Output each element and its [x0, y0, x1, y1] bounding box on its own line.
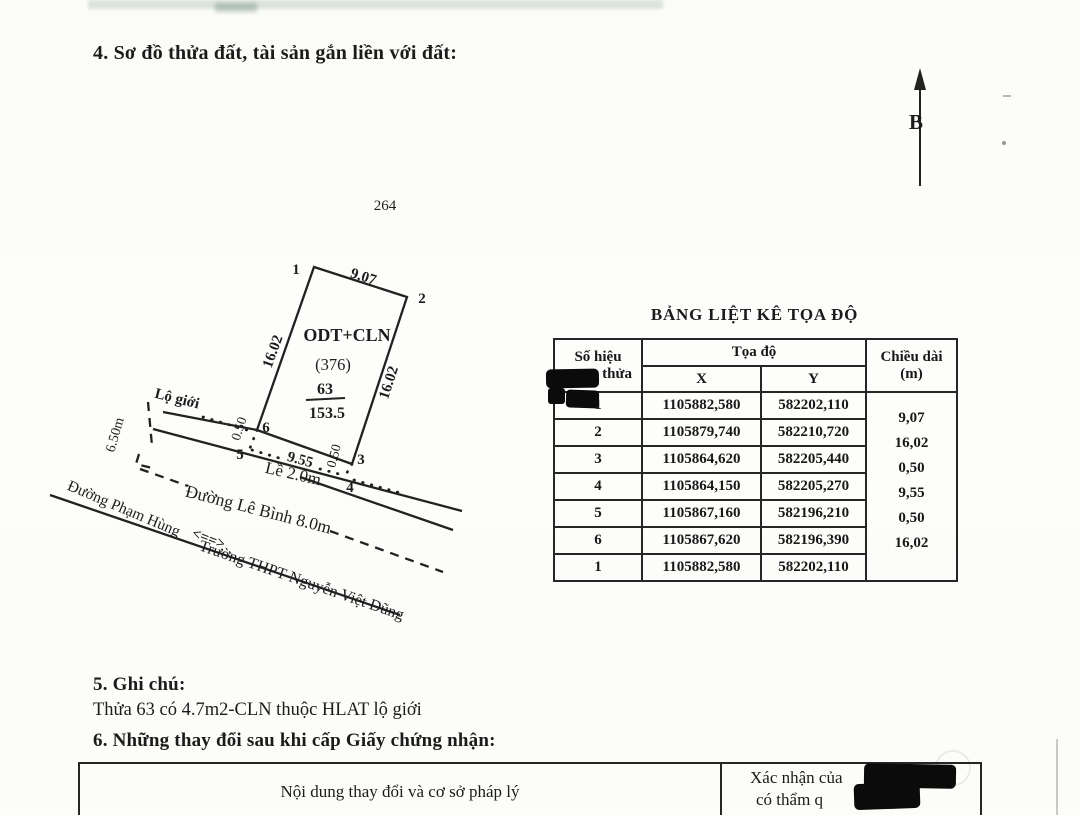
cell-y: 582196,390 [761, 527, 866, 554]
table-row: 1 1105882,580 582202,110 9,07 16,02 0,50… [554, 392, 957, 419]
land-use-label: ODT+CLN [303, 325, 390, 345]
edge-jog-left-label: 0.50 [228, 415, 250, 442]
setback-dashed-corner [136, 454, 152, 468]
map-sheet-number: 264 [374, 198, 397, 214]
coord-header-row-1: Số hiệu thửa Tọa độ Chiều dài (m) [554, 339, 957, 366]
direction-from-label: Đường Phạm Hùng [65, 477, 183, 540]
redaction-mark [854, 782, 921, 810]
plot-number-label: 63 [317, 381, 333, 398]
corner-label-1: 1 [292, 262, 300, 278]
coord-header-y: Y [761, 366, 866, 392]
redaction-mark [546, 369, 599, 389]
edge-right-label: 16.02 [376, 364, 402, 401]
setback-label: 6.50m [104, 416, 128, 454]
length-values-cell: 9,07 16,02 0,50 9,55 0,50 16,02 [866, 392, 957, 581]
redaction-mark [566, 389, 600, 408]
cell-no: 5 [554, 500, 642, 527]
edge-jog-right-label: 0.50 [323, 442, 344, 469]
length-value: 9,55 [867, 481, 956, 506]
changes-right-line2: có thẩm q [756, 790, 823, 810]
document-page: 4. Sơ đồ thửa đất, tài sản gắn liền với … [0, 0, 1080, 815]
coord-table-title: BẢNG LIỆT KÊ TỌA ĐỘ [553, 305, 956, 325]
fraction-line [306, 398, 345, 400]
lo-gioi-dotted-right [354, 480, 404, 494]
length-value: 0,50 [867, 506, 956, 531]
cell-x: 1105867,620 [642, 527, 761, 554]
coordinates-table: Số hiệu thửa Tọa độ Chiều dài (m) X Y 1 … [553, 338, 958, 582]
cell-no: 4 [554, 473, 642, 500]
changes-right-line1: Xác nhận của [750, 768, 843, 788]
coord-header-length: Chiều dài (m) [866, 339, 957, 392]
changes-table: Nội dung thay đổi và cơ sở pháp lý Xác n… [78, 762, 982, 815]
length-value: 9,07 [867, 406, 956, 431]
length-value: 16,02 [867, 531, 956, 556]
plot-code-label: (376) [315, 355, 351, 374]
corner-label-5: 5 [236, 447, 244, 463]
jog-6-5-dotted [250, 430, 257, 448]
road-far-boundary-dashed-a [140, 469, 188, 486]
jog-3-4-dotted [345, 464, 352, 476]
cell-x: 1105864,620 [642, 446, 761, 473]
corner-label-6: 6 [262, 420, 270, 436]
length-value: 0,50 [867, 456, 956, 481]
cell-x: 1105879,740 [642, 419, 761, 446]
cell-no: 6 [554, 527, 642, 554]
cell-no: 1 [554, 554, 642, 581]
cell-y: 582205,440 [761, 446, 866, 473]
cell-y: 582202,110 [761, 392, 866, 419]
coord-header-length-line1: Chiều dài [867, 349, 956, 366]
cell-x: 1105882,580 [642, 392, 761, 419]
redaction-mark [548, 388, 565, 404]
corner-label-2: 2 [418, 291, 426, 307]
edge-left-label: 16.02 [260, 333, 287, 370]
road-far-boundary-dashed-b [330, 531, 443, 572]
cell-no: 2 [554, 419, 642, 446]
cell-no: 3 [554, 446, 642, 473]
scan-speck-dot [1002, 141, 1006, 145]
lo-gioi-label: Lộ giới [153, 386, 201, 413]
cell-y: 582202,110 [761, 554, 866, 581]
north-label: B [909, 110, 923, 134]
scan-speck-dash [1003, 95, 1011, 97]
corner-label-4: 4 [346, 480, 354, 496]
cell-y: 582205,270 [761, 473, 866, 500]
cell-x: 1105882,580 [642, 554, 761, 581]
direction-to-label: Trường THPT Nguyễn Việt Dũng [197, 538, 406, 624]
section5-heading: 5. Ghi chú: [93, 674, 185, 696]
cell-y: 582196,210 [761, 500, 866, 527]
plot-area-label: 153.5 [309, 405, 345, 422]
changes-left-header: Nội dung thay đổi và cơ sở pháp lý [80, 764, 722, 815]
setback-dashed-boundary [148, 402, 152, 446]
cell-y: 582210,720 [761, 419, 866, 446]
edge-top-label: 9.07 [348, 266, 378, 289]
corner-label-3: 3 [357, 452, 365, 468]
cell-x: 1105864,150 [642, 473, 761, 500]
section6-heading: 6. Những thay đổi sau khi cấp Giấy chứng… [93, 730, 496, 752]
coord-header-coords: Tọa độ [642, 339, 866, 366]
length-value: 16,02 [867, 431, 956, 456]
coord-header-length-line2: (m) [867, 366, 956, 383]
cell-x: 1105867,160 [642, 500, 761, 527]
coord-header-x: X [642, 366, 761, 392]
section4-heading: 4. Sơ đồ thửa đất, tài sản gắn liền với … [93, 42, 457, 65]
section5-note: Thửa 63 có 4.7m2-CLN thuộc HLAT lộ giới [93, 700, 422, 721]
coord-header-no-line1: Số hiệu [555, 349, 641, 366]
